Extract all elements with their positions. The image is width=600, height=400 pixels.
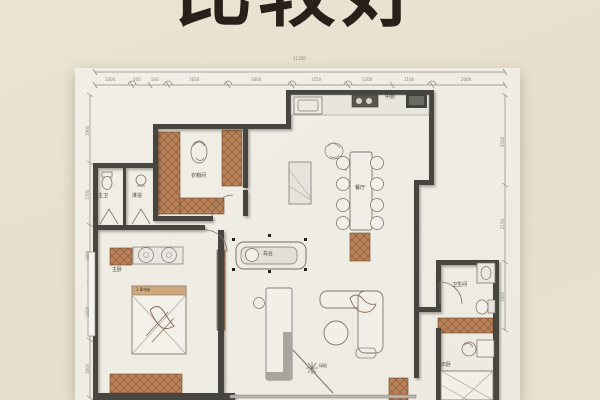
poster: 比较好 <box>0 0 600 400</box>
dim-top-seg: 1650 <box>189 78 199 82</box>
dim-right-seg: 2500 <box>501 137 505 147</box>
dim-top-seg: 500 <box>133 78 141 82</box>
room-label-second-bedroom: 次卧 <box>441 363 451 368</box>
plant-group <box>293 350 333 393</box>
dim-top-seg: 1800 <box>251 78 261 82</box>
dim-top-seg: 2000 <box>461 78 471 82</box>
dim-top-seg: 1550 <box>311 78 321 82</box>
second-bedroom-group <box>441 340 494 400</box>
room-label-cloakroom: 衣帽间 <box>191 174 206 179</box>
room-label-master-bath: 主卫 <box>98 194 108 199</box>
dim-left-seg: 1550 <box>86 307 90 317</box>
dim-top-seg: 1200 <box>362 78 372 82</box>
dim-top-seg: 1000 <box>105 78 115 82</box>
room-label-dining: 餐厅 <box>355 186 365 191</box>
dim-right-seg: 1900 <box>501 292 505 302</box>
plant-label: 绿植 <box>319 364 327 368</box>
dim-top-seg: 1100 <box>404 78 414 82</box>
dim-left-seg: 1600 <box>86 364 90 374</box>
dim-top-seg: 500 <box>151 78 159 82</box>
bed-size-label: 1.8m床 <box>136 288 150 292</box>
dim-left-seg: 1700 <box>86 190 90 200</box>
room-label-kitchen: 中厨 <box>385 95 395 100</box>
room-label-island: 岛台 <box>263 252 273 257</box>
west-island-group <box>254 288 293 380</box>
cloakroom-plant <box>191 141 207 163</box>
sofa-group <box>320 291 383 358</box>
room-label-master-bedroom: 主卧 <box>112 268 122 273</box>
dim-right-seg: 2150 <box>501 219 505 229</box>
dim-left-seg: 1600 <box>86 251 90 261</box>
room-label-bathroom: 卫生间 <box>452 283 467 288</box>
bathroom-fixtures <box>476 263 495 314</box>
room-label-shower: 淋浴 <box>132 194 142 199</box>
bay-window <box>88 252 95 336</box>
master-bed-group <box>132 247 186 354</box>
balcony-glass-door <box>230 395 416 398</box>
dim-left-seg: 1900 <box>86 126 90 136</box>
dim-top-total: 11350 <box>293 57 306 61</box>
